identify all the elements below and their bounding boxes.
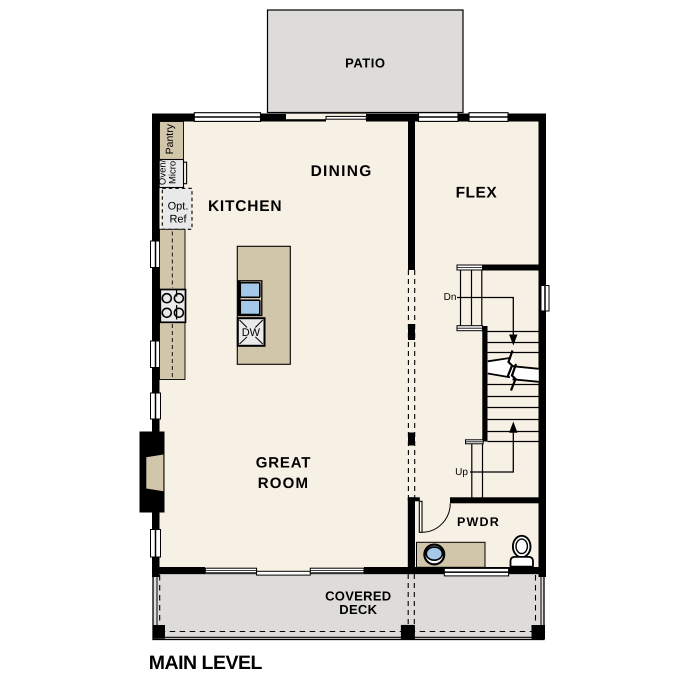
svg-text:COVERED: COVERED: [325, 588, 391, 603]
svg-text:Dn: Dn: [444, 292, 457, 303]
svg-text:GREAT: GREAT: [256, 455, 311, 472]
svg-text:Ref: Ref: [169, 213, 187, 225]
svg-text:DINING: DINING: [311, 163, 373, 180]
svg-text:MAIN LEVEL: MAIN LEVEL: [149, 652, 263, 674]
svg-text:Opt.: Opt.: [168, 200, 189, 212]
svg-text:PWDR: PWDR: [457, 515, 500, 529]
svg-text:Up: Up: [455, 467, 468, 478]
svg-text:KITCHEN: KITCHEN: [208, 198, 283, 215]
svg-text:PATIO: PATIO: [345, 56, 385, 71]
svg-text:DW: DW: [242, 327, 261, 339]
svg-text:ROOM: ROOM: [258, 475, 309, 492]
svg-text:FLEX: FLEX: [456, 185, 498, 202]
svg-text:Micro: Micro: [168, 161, 179, 184]
svg-text:DECK: DECK: [339, 602, 377, 617]
svg-text:Pantry: Pantry: [164, 123, 176, 154]
